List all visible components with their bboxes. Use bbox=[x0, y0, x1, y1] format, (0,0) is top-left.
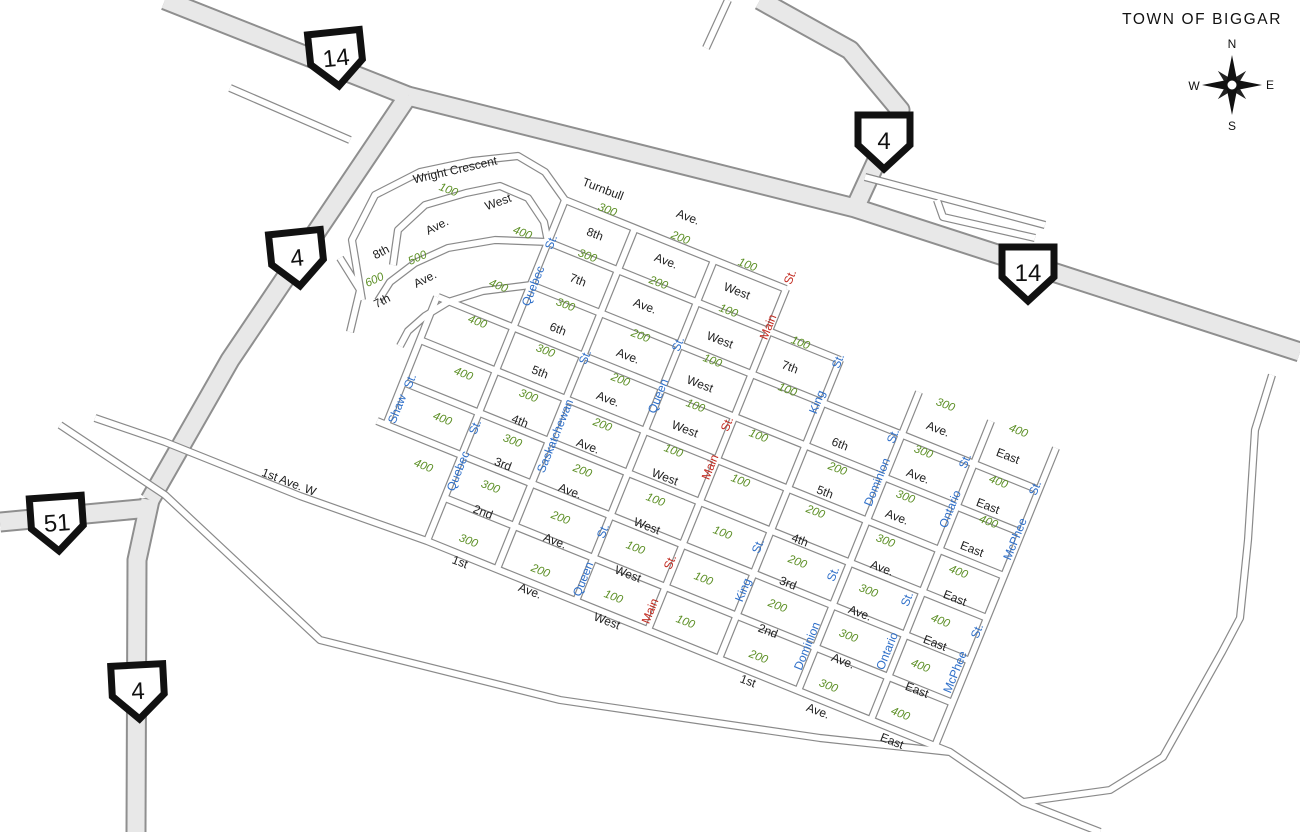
east-perimeter bbox=[1023, 375, 1272, 802]
highway-14-shield-icon: 14 bbox=[1002, 247, 1054, 301]
compass-south-label: S bbox=[1228, 119, 1236, 133]
svg-text:4: 4 bbox=[289, 244, 305, 272]
svg-text:14: 14 bbox=[1015, 260, 1042, 287]
svg-text:4: 4 bbox=[877, 128, 890, 155]
highway-4-shield-icon: 4 bbox=[111, 664, 166, 721]
road-network: 144414514 N E S W bbox=[0, 0, 1300, 832]
compass-rose: N E S W bbox=[1188, 37, 1274, 133]
nw-spur bbox=[230, 88, 350, 140]
compass-north-label: N bbox=[1228, 37, 1237, 51]
map-title: TOWN OF BIGGAR bbox=[1122, 11, 1282, 29]
compass-east-label: E bbox=[1266, 78, 1274, 92]
svg-text:14: 14 bbox=[321, 44, 350, 74]
7th-ave bbox=[531, 285, 1039, 490]
top-stub bbox=[706, 0, 728, 48]
turnbull-ave bbox=[565, 200, 786, 289]
town-map: 144414514 N E S W Wright CrescentTurnbul… bbox=[0, 0, 1300, 832]
svg-text:51: 51 bbox=[43, 509, 72, 538]
railway bbox=[60, 425, 1100, 832]
wright-inner bbox=[393, 186, 548, 265]
hwy14-west bbox=[165, 0, 408, 96]
east-perimeter bbox=[1023, 375, 1272, 802]
highway-51-shield-icon: 51 bbox=[29, 495, 85, 552]
compass-west-label: W bbox=[1188, 79, 1200, 93]
4th-ave bbox=[403, 382, 987, 618]
3rd-ave bbox=[377, 421, 970, 661]
1st-ave bbox=[95, 418, 950, 752]
street-casings bbox=[60, 0, 1272, 832]
svg-text:4: 4 bbox=[131, 678, 146, 706]
hwy4-southwest bbox=[150, 96, 408, 500]
street-fills bbox=[60, 0, 1272, 832]
railway bbox=[60, 425, 1100, 832]
